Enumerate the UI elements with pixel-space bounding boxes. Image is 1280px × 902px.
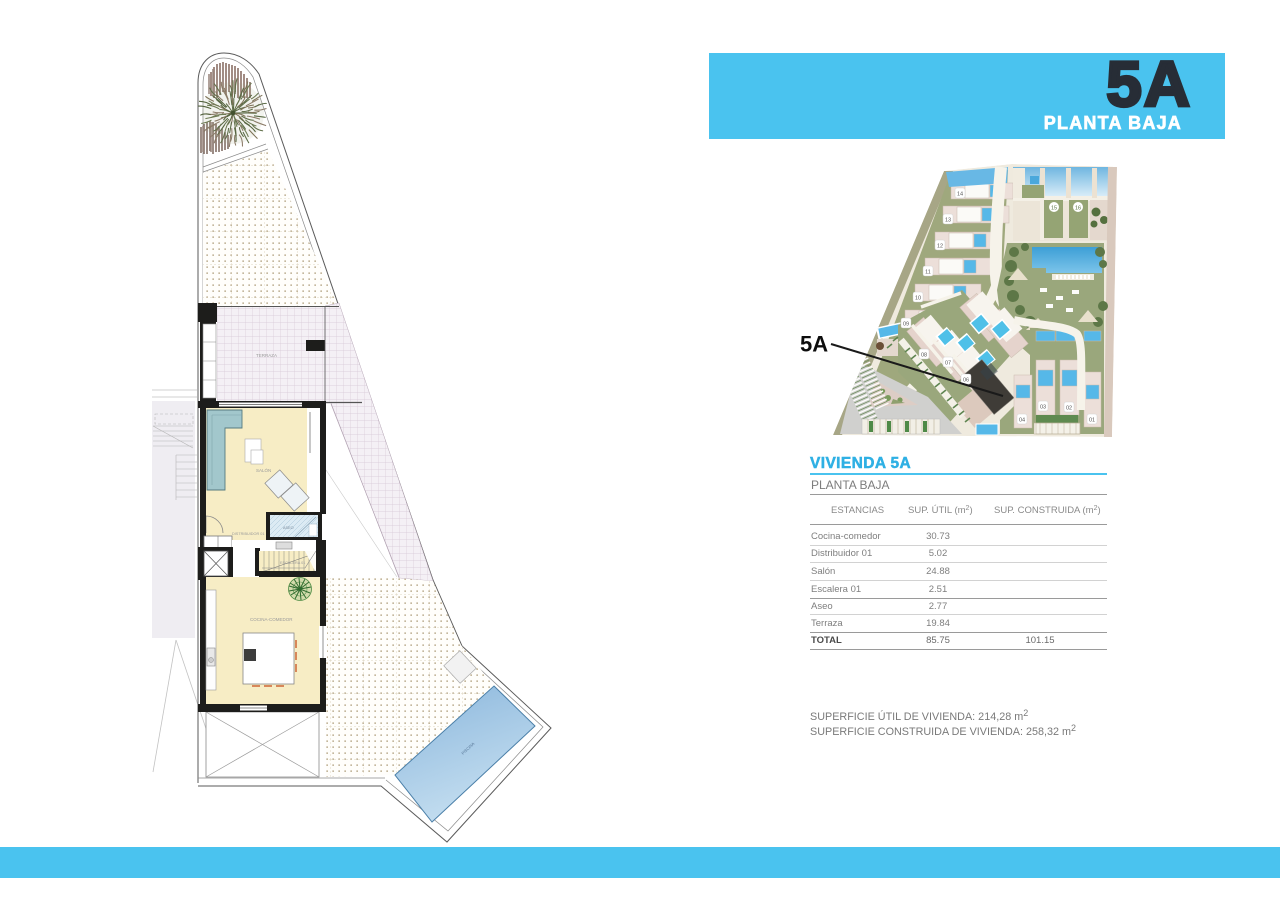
svg-text:10: 10 <box>915 296 921 302</box>
svg-text:08: 08 <box>921 353 927 359</box>
svg-text:11: 11 <box>925 270 931 276</box>
svg-text:01: 01 <box>1089 418 1095 424</box>
svg-text:16: 16 <box>1075 206 1081 212</box>
svg-text:02: 02 <box>1066 406 1072 412</box>
svg-text:12: 12 <box>937 244 943 250</box>
svg-text:15: 15 <box>1051 206 1057 212</box>
svg-text:06: 06 <box>963 378 969 384</box>
svg-text:04: 04 <box>1019 418 1025 424</box>
svg-text:07: 07 <box>945 361 951 367</box>
svg-text:14: 14 <box>957 192 963 198</box>
svg-text:09: 09 <box>903 322 909 328</box>
svg-text:5A: 5A <box>800 332 828 357</box>
svg-text:03: 03 <box>1040 405 1046 411</box>
svg-text:13: 13 <box>945 218 951 224</box>
